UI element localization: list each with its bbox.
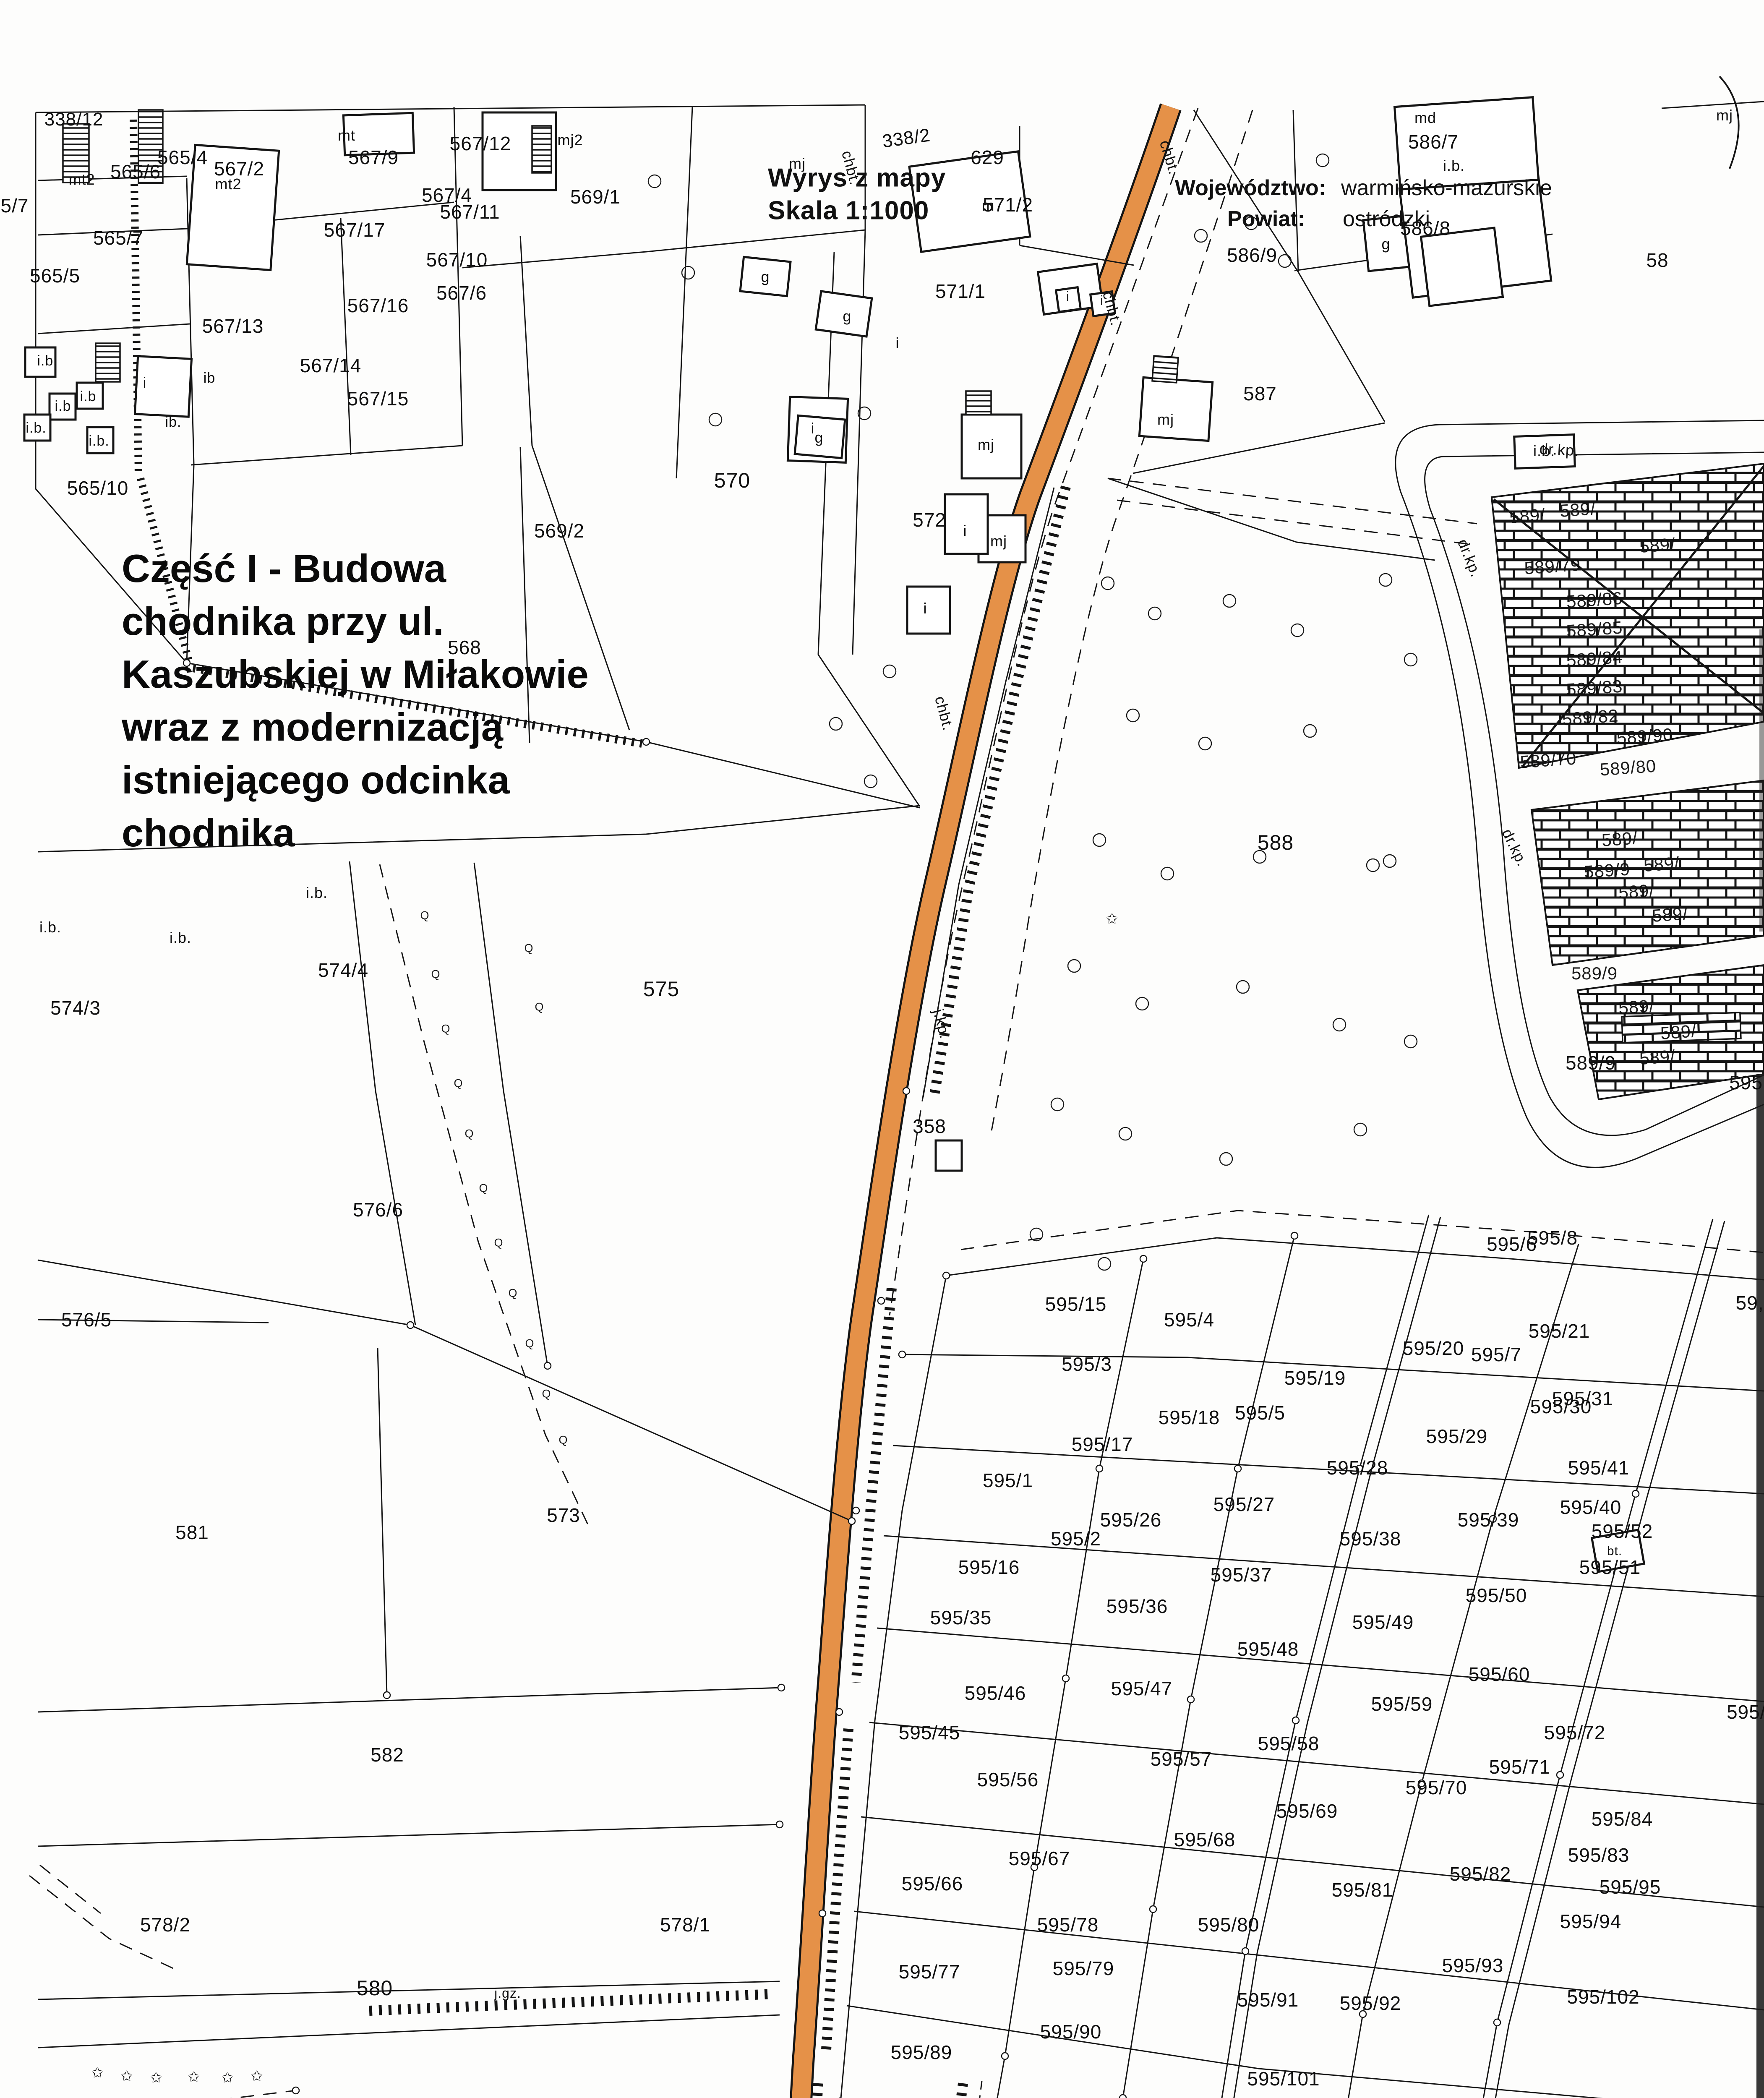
land-use-label: ib. bbox=[165, 415, 182, 429]
parcel-label: 582 bbox=[371, 1745, 404, 1764]
voivodeship-value: warmińsko-mazurskie bbox=[1341, 175, 1552, 201]
oak-tree-symbol: Q bbox=[542, 1388, 551, 1401]
parcel-label: 595/37 bbox=[1211, 1565, 1272, 1584]
star-symbol: ✩ bbox=[222, 2069, 234, 2086]
oak-tree-symbol: Q bbox=[558, 1434, 567, 1447]
land-use-label: i.b. bbox=[170, 930, 191, 945]
parcel-label: 595/52 bbox=[1592, 1521, 1653, 1541]
parcel-label: 595/51 bbox=[1579, 1558, 1641, 1577]
parcel-label: 338/12 bbox=[44, 110, 104, 129]
parcel-label: 588 bbox=[1258, 832, 1294, 853]
land-use-label: i bbox=[1066, 290, 1070, 303]
land-use-label: i bbox=[924, 601, 927, 616]
parcel-label: 589/83 bbox=[1566, 677, 1623, 699]
parcel-label: 595/27 bbox=[1213, 1495, 1275, 1514]
land-use-label: i.b. bbox=[37, 354, 57, 368]
land-use-label: g bbox=[814, 430, 823, 445]
parcel-label: 595/20 bbox=[1403, 1339, 1464, 1358]
parcel-label: 629 bbox=[971, 148, 1004, 167]
parcel-label: 595/50 bbox=[1466, 1586, 1527, 1605]
label-layer: 338/12338/2mt2565/6565/4567/2mt2mt567/95… bbox=[0, 0, 1764, 2098]
road-label: j.kp. bbox=[930, 1007, 952, 1040]
parcel-label: 578/1 bbox=[660, 1915, 710, 1934]
road-label: dr.kp. bbox=[1455, 537, 1484, 579]
land-use-label: mj bbox=[990, 534, 1007, 549]
parcel-label: 595/89 bbox=[891, 2043, 952, 2062]
parcel-label: 595/29 bbox=[1426, 1427, 1488, 1446]
oak-tree-symbol: Q bbox=[420, 909, 429, 922]
oak-tree-symbol: Q bbox=[464, 1127, 473, 1140]
land-use-label: g bbox=[843, 309, 851, 324]
parcel-label: 567/15 bbox=[347, 389, 409, 408]
parcel-label: 595/19 bbox=[1284, 1368, 1346, 1388]
land-use-label: i.b bbox=[55, 399, 71, 413]
county-label: Powiat: bbox=[1227, 206, 1305, 232]
parcel-label: 595/81 bbox=[1332, 1880, 1393, 1900]
parcel-label: 589/ bbox=[1639, 1047, 1676, 1067]
road-label: chbt. bbox=[932, 694, 956, 732]
parcel-label: 589/ bbox=[1601, 829, 1638, 849]
parcel-label: 595/80 bbox=[1198, 1915, 1260, 1934]
parcel-label: 595/59 bbox=[1371, 1694, 1433, 1714]
parcel-label: 595/60 bbox=[1469, 1665, 1530, 1684]
land-use-label: i bbox=[896, 336, 900, 351]
parcel-label: 595/66 bbox=[902, 1874, 963, 1893]
parcel-label: 595/90 bbox=[1040, 2022, 1102, 2041]
parcel-label: 589/82 bbox=[1561, 707, 1619, 728]
star-symbol: ✩ bbox=[1106, 911, 1118, 927]
land-use-label: mt bbox=[338, 128, 355, 143]
title-block: Część I - Budowachodnika przy ul.Kaszubs… bbox=[122, 542, 667, 859]
parcel-label: 595/47 bbox=[1111, 1679, 1173, 1698]
parcel-label: 571/1 bbox=[935, 282, 986, 301]
parcel-label: 595/26 bbox=[1100, 1510, 1162, 1529]
parcel-label: 589/9 bbox=[1566, 1053, 1616, 1072]
road-label: dr.kp. bbox=[1499, 827, 1530, 869]
parcel-label: 595/4 bbox=[1164, 1310, 1214, 1329]
land-use-label: mj2 bbox=[557, 133, 583, 148]
parcel-label: 595/101 bbox=[1247, 2069, 1320, 2088]
parcel-label: 565/5 bbox=[30, 266, 80, 285]
parcel-label: 595/28 bbox=[1327, 1458, 1388, 1477]
clipped-parcel-label: 5/7 bbox=[1, 196, 29, 215]
parcel-label: 595/92 bbox=[1340, 1994, 1401, 2013]
parcel-label: 595/1 bbox=[983, 1471, 1033, 1490]
land-use-label: mt2 bbox=[68, 172, 95, 187]
parcel-label: 586/9 bbox=[1227, 245, 1277, 265]
parcel-label: 595/45 bbox=[899, 1723, 960, 1742]
land-use-label: mj bbox=[1716, 108, 1733, 123]
parcel-label: 595/48 bbox=[1237, 1639, 1299, 1659]
clipped-parcel-label: 59, bbox=[1736, 1293, 1764, 1313]
parcel-label: 567/17 bbox=[324, 220, 386, 240]
parcel-label: 595/58 bbox=[1258, 1734, 1320, 1753]
parcel-label: 595/49 bbox=[1352, 1613, 1414, 1632]
land-use-label: i.b. bbox=[39, 920, 61, 935]
parcel-label: 595/67 bbox=[1009, 1849, 1070, 1868]
clipped-parcel-label: 58 bbox=[1646, 251, 1668, 270]
parcel-label: 595/84 bbox=[1592, 1809, 1653, 1829]
parcel-label: 338/2 bbox=[881, 126, 932, 151]
parcel-label: 595/72 bbox=[1544, 1723, 1606, 1742]
parcel-label: 586/7 bbox=[1408, 132, 1459, 151]
parcel-label: 595/91 bbox=[1237, 1990, 1299, 2009]
parcel-label: 589/80 bbox=[1599, 757, 1657, 778]
oak-tree-symbol: Q bbox=[441, 1023, 450, 1036]
parcel-label: 595/93 bbox=[1442, 1956, 1504, 1975]
parcel-label: 595/35 bbox=[930, 1608, 992, 1627]
parcel-label: 589/ bbox=[1660, 1022, 1697, 1042]
parcel-label: 567/12 bbox=[450, 134, 511, 153]
land-use-label: ib bbox=[204, 371, 215, 385]
parcel-label: 595/56 bbox=[977, 1770, 1039, 1789]
land-use-label: i.b. bbox=[1443, 158, 1465, 173]
land-use-label: i bbox=[811, 421, 815, 436]
voivodeship-label: Województwo: bbox=[1175, 175, 1326, 201]
parcel-label: 595/77 bbox=[899, 1962, 960, 1981]
parcel-label: 589/90 bbox=[1616, 725, 1673, 747]
oak-tree-symbol: Q bbox=[525, 1337, 534, 1350]
parcel-label: 569/2 bbox=[534, 521, 585, 540]
county-value: ostródzki bbox=[1343, 206, 1430, 232]
oak-tree-symbol: Q bbox=[454, 1077, 462, 1090]
parcel-label: 589/ bbox=[1509, 506, 1546, 526]
parcel-label: 595/5 bbox=[1235, 1403, 1285, 1422]
title-line: wraz z modernizacją bbox=[122, 701, 667, 754]
parcel-label: 595/46 bbox=[965, 1683, 1026, 1703]
parcel-label: 595/69 bbox=[1276, 1801, 1338, 1821]
parcel-label: 589/84 bbox=[1566, 648, 1623, 669]
parcel-label: 595/71 bbox=[1489, 1757, 1551, 1777]
parcel-label: 595/78 bbox=[1037, 1915, 1099, 1934]
parcel-label: 595/95 bbox=[1600, 1877, 1661, 1897]
parcel-label: 595/16 bbox=[958, 1558, 1020, 1577]
parcel-label: 595/39 bbox=[1458, 1510, 1519, 1529]
parcel-label: 589/85 bbox=[1566, 618, 1623, 640]
oak-tree-symbol: Q bbox=[508, 1287, 517, 1300]
parcel-label: 589/ bbox=[1618, 882, 1655, 902]
land-use-label: i.b bbox=[80, 389, 97, 404]
title-line: istniejącego odcinka bbox=[122, 754, 667, 806]
clipped-parcel-label: 595, bbox=[1729, 1073, 1764, 1092]
parcel-label: 589/ bbox=[1639, 535, 1676, 556]
road-label: dr.kp. bbox=[1539, 441, 1579, 459]
parcel-label: 595/40 bbox=[1560, 1498, 1622, 1517]
parcel-label: 575 bbox=[643, 979, 679, 999]
star-symbol: ✩ bbox=[251, 2068, 263, 2085]
road-label: chbt. bbox=[1157, 138, 1182, 176]
land-use-label: m bbox=[982, 198, 995, 213]
parcel-label: 589/86 bbox=[1566, 589, 1623, 611]
land-use-label: mj bbox=[978, 437, 994, 452]
parcel-label: 595/79 bbox=[1053, 1959, 1114, 1978]
parcel-label: 567/11 bbox=[440, 202, 500, 222]
parcel-label: 576/6 bbox=[353, 1200, 403, 1219]
parcel-label: 595/17 bbox=[1072, 1435, 1133, 1454]
parcel-label: 574/3 bbox=[50, 998, 101, 1018]
land-use-label: i.b. bbox=[89, 434, 109, 448]
oak-tree-symbol: Q bbox=[494, 1237, 503, 1250]
parcel-label: 595/41 bbox=[1568, 1458, 1630, 1477]
parcel-label: 567/16 bbox=[347, 296, 409, 315]
land-use-label: md bbox=[1414, 110, 1436, 125]
parcel-label: 565/6 bbox=[110, 162, 161, 181]
cadastral-map-page: 338/12338/2mt2565/6565/4567/2mt2mt567/95… bbox=[0, 0, 1764, 2098]
parcel-label: 567/10 bbox=[426, 250, 488, 269]
parcel-label: 358 bbox=[913, 1117, 946, 1136]
oak-tree-symbol: Q bbox=[431, 968, 440, 981]
parcel-label: 573 bbox=[547, 1506, 580, 1525]
parcel-label: 569/1 bbox=[570, 187, 621, 206]
land-use-label: mj bbox=[1157, 412, 1174, 427]
parcel-label: 567/13 bbox=[202, 316, 264, 336]
parcel-label: 595/83 bbox=[1568, 1845, 1630, 1865]
land-use-label: i bbox=[143, 375, 147, 390]
title-line: chodnika bbox=[122, 806, 667, 859]
parcel-label: 581 bbox=[175, 1523, 209, 1542]
parcel-label: 595/18 bbox=[1159, 1408, 1220, 1427]
parcel-label: 595/21 bbox=[1529, 1321, 1590, 1341]
land-use-label: g bbox=[1381, 237, 1390, 252]
title-line: Kaszubskiej w Miłakowie bbox=[122, 648, 667, 701]
parcel-label: 567/6 bbox=[436, 283, 487, 303]
parcel-label: 595/68 bbox=[1174, 1830, 1236, 1849]
parcel-label: 589/9 bbox=[1571, 965, 1618, 982]
oak-tree-symbol: Q bbox=[535, 1001, 543, 1014]
parcel-label: 595/30 bbox=[1530, 1397, 1592, 1416]
parcel-label: 595/6 bbox=[1487, 1234, 1537, 1254]
parcel-label: 595/38 bbox=[1340, 1529, 1401, 1548]
parcel-label: 589/ bbox=[1559, 500, 1596, 520]
road-label: j.gz. bbox=[494, 1986, 521, 2000]
parcel-label: 567/14 bbox=[300, 356, 362, 375]
land-use-label: g bbox=[761, 269, 770, 284]
parcel-label: 589/ bbox=[1618, 997, 1655, 1017]
parcel-label: 589/9 bbox=[1584, 860, 1631, 881]
parcel-label: 572 bbox=[913, 510, 946, 530]
star-symbol: ✩ bbox=[188, 2069, 200, 2085]
parcel-label: 565/4 bbox=[157, 148, 208, 167]
land-use-label: i.b. bbox=[26, 421, 46, 435]
parcel-label: 576/5 bbox=[61, 1310, 112, 1329]
parcel-label: 589/79 bbox=[1524, 556, 1581, 577]
map-scale: Skala 1:1000 bbox=[768, 196, 929, 226]
land-use-label: bt. bbox=[1607, 1545, 1622, 1558]
parcel-label: 595/15 bbox=[1045, 1294, 1107, 1314]
oak-tree-symbol: Q bbox=[479, 1182, 488, 1195]
parcel-label: 574/4 bbox=[318, 960, 368, 980]
parcel-label: 595/94 bbox=[1560, 1912, 1622, 1931]
parcel-label: 595/82 bbox=[1450, 1864, 1511, 1884]
parcel-label: 595/57 bbox=[1151, 1749, 1212, 1769]
star-symbol: ✩ bbox=[150, 2069, 162, 2086]
parcel-label: 595/7 bbox=[1471, 1345, 1521, 1364]
parcel-label: 578/2 bbox=[140, 1915, 190, 1934]
oak-tree-symbol: Q bbox=[524, 942, 533, 955]
land-use-label: i.b. bbox=[306, 885, 328, 900]
parcel-label: 565/10 bbox=[67, 478, 129, 498]
star-symbol: ✩ bbox=[121, 2068, 133, 2085]
parcel-label: 595/36 bbox=[1106, 1597, 1168, 1616]
parcel-label: 595/70 bbox=[1406, 1778, 1467, 1797]
land-use-label: i bbox=[963, 523, 967, 538]
parcel-label: 587 bbox=[1243, 384, 1277, 403]
parcel-label: 595/2 bbox=[1051, 1529, 1101, 1548]
road-label: chbt. bbox=[1100, 290, 1124, 327]
map-extract-title: Wyrys z mapy bbox=[768, 163, 946, 193]
parcel-label: 570 bbox=[714, 470, 750, 491]
parcel-label: 565/7 bbox=[93, 228, 144, 248]
parcel-label: 580 bbox=[357, 1978, 393, 1999]
parcel-label: 589/70 bbox=[1519, 749, 1577, 771]
parcel-label: 567/9 bbox=[348, 148, 399, 167]
title-line: chodnika przy ul. bbox=[122, 595, 667, 648]
land-use-label: mt2 bbox=[215, 177, 241, 192]
parcel-label: 595/3 bbox=[1062, 1354, 1112, 1374]
star-symbol: ✩ bbox=[91, 2064, 104, 2081]
parcel-label: 589/ bbox=[1643, 854, 1680, 874]
title-line: Część I - Budowa bbox=[122, 542, 667, 595]
parcel-label: 589/ bbox=[1652, 905, 1688, 925]
clipped-parcel-label: 595/6 bbox=[1727, 1702, 1764, 1722]
parcel-label: 595/102 bbox=[1567, 1987, 1639, 2007]
